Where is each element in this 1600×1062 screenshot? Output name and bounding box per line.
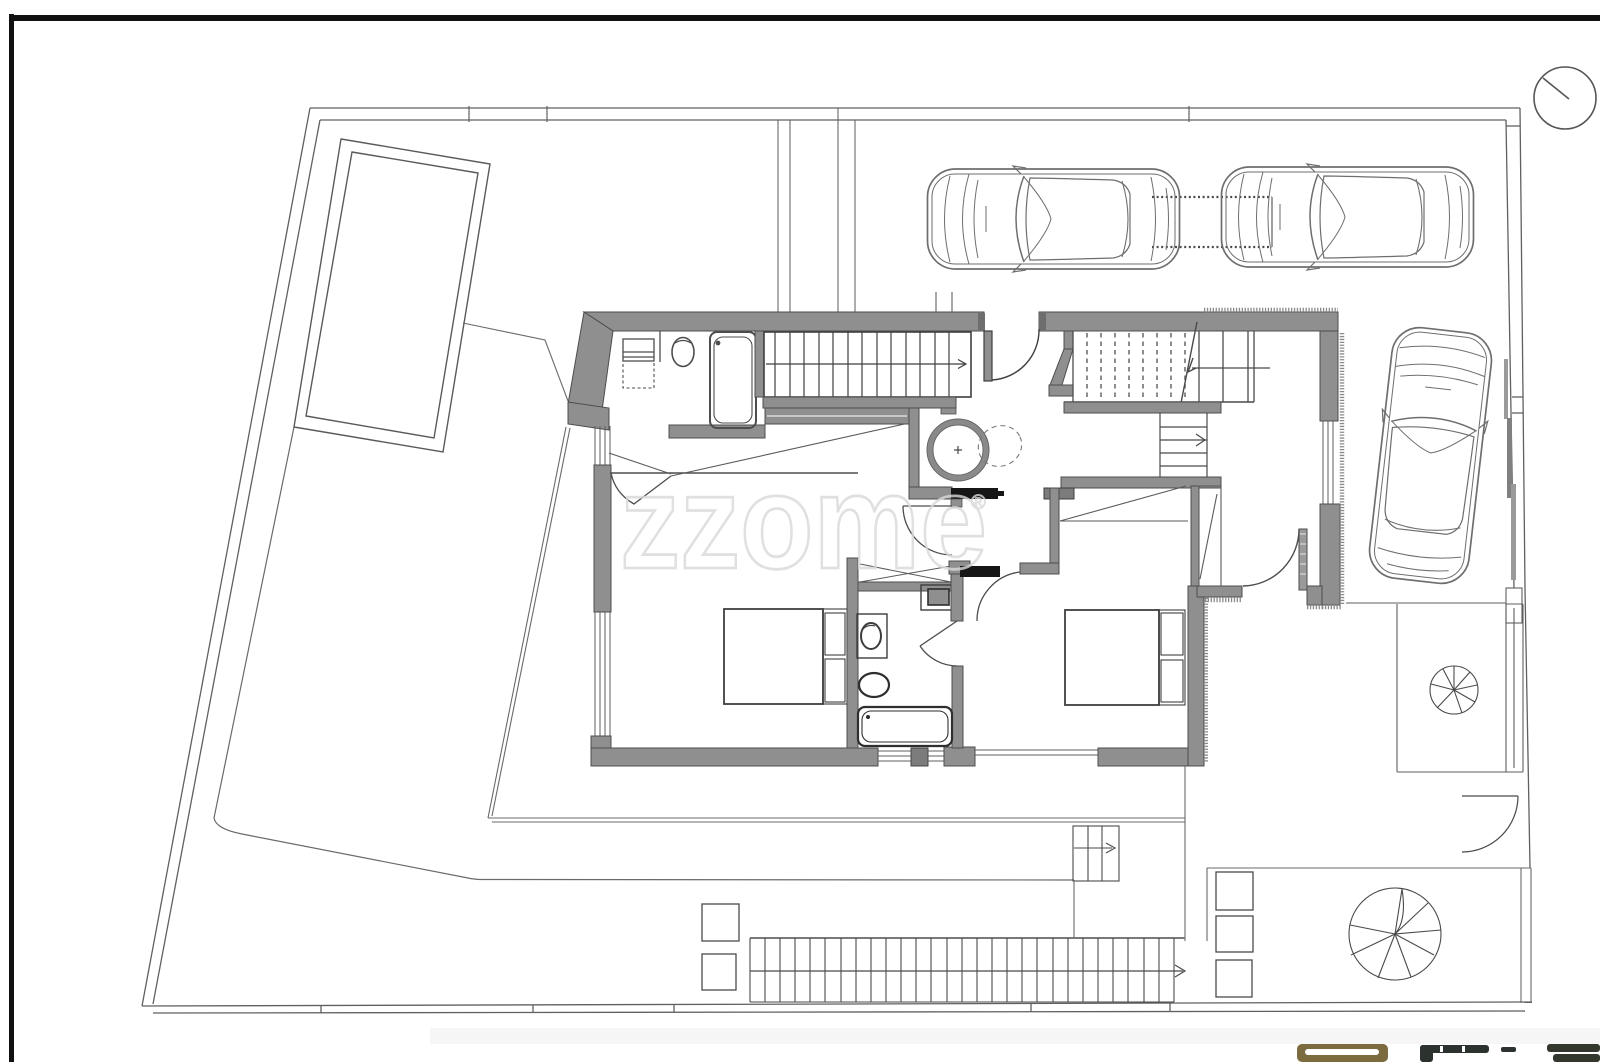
svg-text:®: ® <box>971 492 986 514</box>
svg-text:zzome: zzome <box>620 448 987 597</box>
